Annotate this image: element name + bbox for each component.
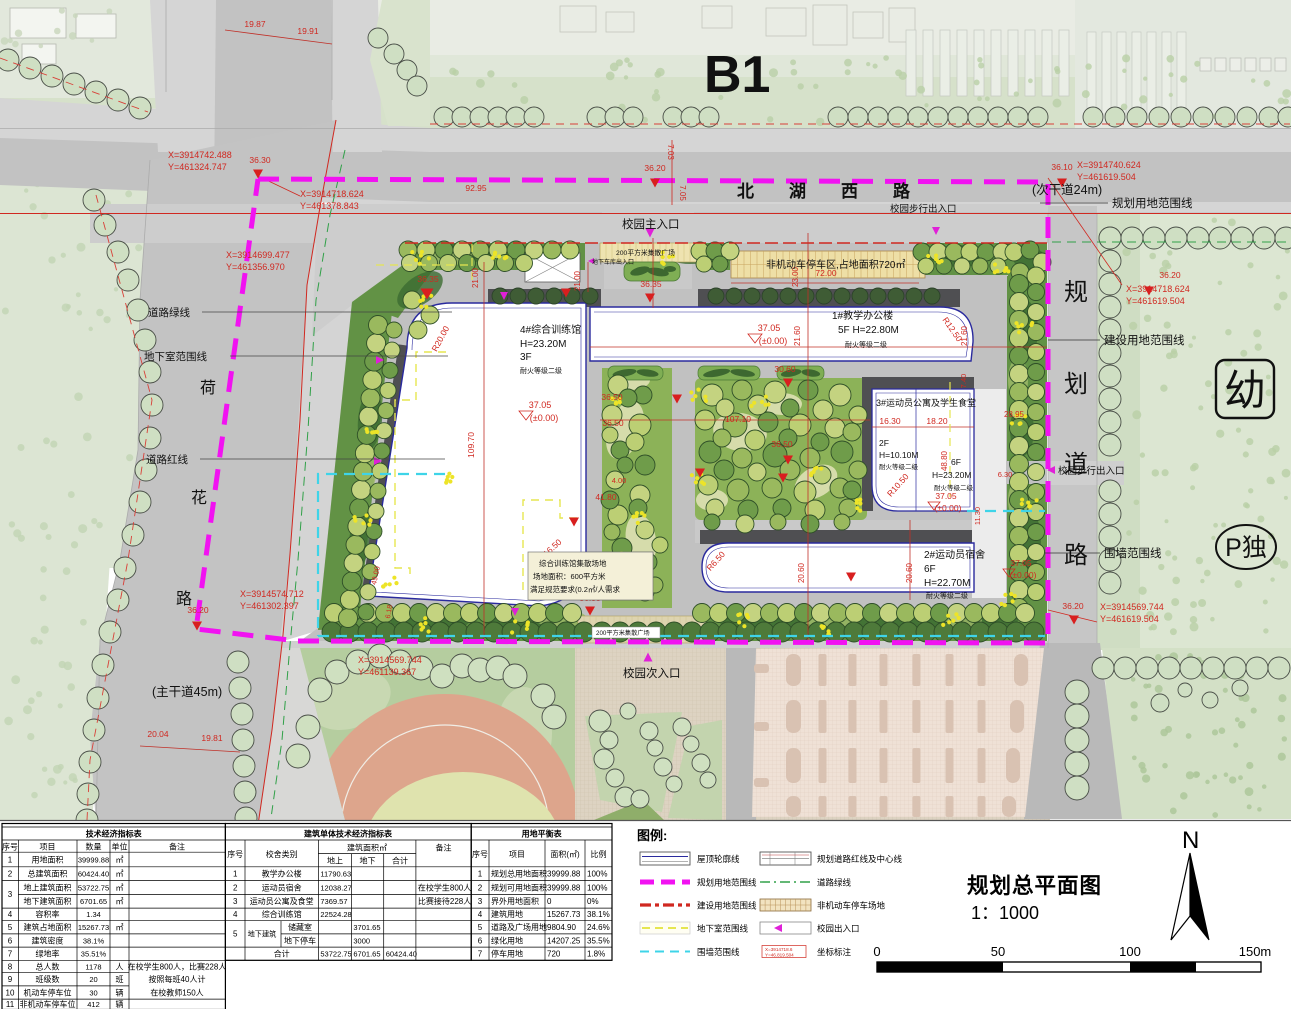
svg-text:30.60: 30.60 — [774, 364, 796, 374]
svg-text:H=10.10M: H=10.10M — [879, 450, 918, 460]
svg-text:综合训练馆: 综合训练馆 — [262, 909, 302, 919]
svg-text:备注: 备注 — [436, 843, 452, 853]
svg-text:36.50: 36.50 — [601, 392, 623, 402]
svg-text:53722.75: 53722.75 — [78, 883, 109, 892]
svg-text:92.95: 92.95 — [465, 183, 487, 193]
svg-text:划: 划 — [1064, 371, 1088, 398]
svg-text:辆: 辆 — [116, 999, 124, 1009]
svg-text:储藏室: 储藏室 — [288, 922, 312, 932]
svg-text:19.87: 19.87 — [244, 19, 266, 29]
svg-text:1178: 1178 — [85, 962, 101, 971]
svg-text:3000: 3000 — [353, 936, 370, 945]
svg-text:21.60: 21.60 — [960, 325, 969, 346]
svg-text:X=3914718.6: X=3914718.6 — [765, 947, 793, 952]
svg-text:北: 北 — [737, 182, 754, 201]
svg-text:37.05: 37.05 — [529, 400, 552, 410]
svg-text:5F H=22.80M: 5F H=22.80M — [838, 325, 899, 336]
svg-text:36.30: 36.30 — [249, 155, 271, 165]
svg-text:用地平衡表: 用地平衡表 — [521, 829, 563, 839]
svg-text:1.8%: 1.8% — [587, 950, 605, 959]
svg-text:7.03: 7.03 — [666, 144, 675, 160]
svg-text:规划总用地面积: 规划总用地面积 — [491, 868, 547, 878]
svg-text:建筑用地: 建筑用地 — [491, 909, 523, 919]
svg-text:湖: 湖 — [789, 182, 806, 201]
svg-text:非机动车停车区,占地面积720㎡: 非机动车停车区,占地面积720㎡ — [766, 258, 905, 271]
svg-text:2F: 2F — [879, 438, 889, 448]
svg-text:Y=461356.970: Y=461356.970 — [226, 262, 285, 272]
svg-text:P独: P独 — [1225, 534, 1267, 562]
svg-text:60424.40: 60424.40 — [78, 869, 109, 878]
svg-text:X=3914718.624: X=3914718.624 — [1126, 284, 1190, 294]
svg-text:场地面积：600平方米: 场地面积：600平方米 — [533, 571, 606, 581]
svg-text:8: 8 — [8, 962, 13, 971]
svg-text:20: 20 — [89, 975, 97, 984]
svg-text:21.00: 21.00 — [573, 270, 582, 291]
svg-text:60424.40: 60424.40 — [386, 950, 417, 959]
svg-text:50: 50 — [991, 944, 1005, 959]
svg-text:地下车库出入口: 地下车库出入口 — [592, 258, 634, 266]
svg-text:综合训练馆集散场地: 综合训练馆集散场地 — [539, 558, 607, 568]
svg-text:150m: 150m — [1239, 944, 1272, 959]
svg-text:1：1000: 1：1000 — [971, 903, 1039, 923]
svg-text:38.1%: 38.1% — [587, 910, 610, 919]
svg-text:4#综合训练馆: 4#综合训练馆 — [520, 323, 581, 336]
svg-text:路: 路 — [176, 590, 192, 608]
svg-text:12038.27: 12038.27 — [320, 883, 351, 892]
svg-text:N: N — [1182, 827, 1199, 854]
svg-text:㎡: ㎡ — [116, 923, 124, 932]
svg-text:校舍类别: 校舍类别 — [266, 849, 298, 859]
svg-text:耐火等级二级: 耐火等级二级 — [926, 591, 968, 600]
svg-text:35.51%: 35.51% — [81, 950, 107, 959]
svg-text:辆: 辆 — [116, 987, 124, 997]
svg-text:容积率: 容积率 — [36, 909, 60, 919]
svg-text:机动车停车位: 机动车停车位 — [24, 987, 72, 997]
svg-text:地下: 地下 — [360, 856, 376, 866]
svg-text:荷: 荷 — [200, 379, 216, 397]
svg-text:200平方米集散广场: 200平方米集散广场 — [596, 629, 650, 637]
svg-text:地下室范围线: 地下室范围线 — [697, 924, 749, 934]
svg-text:规划用地范围线: 规划用地范围线 — [697, 878, 757, 888]
svg-text:规划总平面图: 规划总平面图 — [967, 873, 1102, 898]
svg-text:规: 规 — [1064, 279, 1088, 306]
svg-text:运动员公寓及食堂: 运动员公寓及食堂 — [250, 896, 314, 906]
svg-text:Y=461302.397: Y=461302.397 — [240, 601, 299, 611]
svg-text:3: 3 — [233, 897, 238, 906]
svg-text:6: 6 — [478, 936, 483, 945]
svg-text:运动员宿舍: 运动员宿舍 — [262, 882, 302, 892]
svg-text:1: 1 — [233, 869, 238, 878]
svg-text:X=3914742.488: X=3914742.488 — [168, 150, 232, 160]
svg-text:53722.75: 53722.75 — [320, 950, 351, 959]
svg-text:序号: 序号 — [227, 849, 243, 859]
svg-text:数量: 数量 — [86, 842, 102, 852]
svg-text:花: 花 — [191, 489, 207, 507]
svg-text:100%: 100% — [587, 869, 607, 878]
svg-text:在校教师150人: 在校教师150人 — [150, 987, 203, 997]
svg-text:37.05: 37.05 — [1010, 558, 1032, 568]
svg-text:Y=461619.504: Y=461619.504 — [1100, 614, 1159, 624]
svg-text:4: 4 — [233, 910, 238, 919]
svg-text:19.81: 19.81 — [201, 733, 223, 743]
svg-text:21.00: 21.00 — [471, 267, 480, 288]
svg-text:建设用地范围线: 建设用地范围线 — [1104, 333, 1185, 347]
svg-text:地下建筑面积: 地下建筑面积 — [24, 896, 72, 906]
svg-text:15267.73: 15267.73 — [547, 910, 581, 919]
svg-text:西: 西 — [841, 182, 858, 201]
svg-text:11.30: 11.30 — [973, 507, 982, 525]
svg-text:11: 11 — [6, 1000, 15, 1009]
svg-text:1#教学办公楼: 1#教学办公楼 — [832, 309, 893, 322]
svg-text:5: 5 — [8, 923, 13, 932]
svg-text:㎡: ㎡ — [116, 855, 124, 864]
svg-text:20.60: 20.60 — [797, 562, 806, 583]
svg-text:0: 0 — [547, 897, 552, 906]
svg-text:道路红线: 道路红线 — [146, 453, 188, 466]
svg-text:Y=461378.843: Y=461378.843 — [300, 201, 359, 211]
svg-text:非机动车停车位: 非机动车停车位 — [20, 999, 76, 1009]
svg-text:0%: 0% — [587, 897, 599, 906]
svg-text:6701.65: 6701.65 — [353, 950, 380, 959]
svg-text:面积(㎡): 面积(㎡) — [550, 849, 580, 859]
svg-text:18.20: 18.20 — [926, 416, 948, 426]
svg-text:2: 2 — [8, 869, 13, 878]
svg-text:2: 2 — [233, 883, 238, 892]
svg-text:单位: 单位 — [112, 842, 128, 852]
svg-text:20.04: 20.04 — [147, 729, 169, 739]
svg-text:10: 10 — [6, 988, 15, 997]
svg-text:绿化用地: 绿化用地 — [491, 935, 523, 945]
svg-text:合计: 合计 — [274, 949, 290, 959]
svg-text:X=3914718.624: X=3914718.624 — [300, 189, 364, 199]
svg-text:停车用地: 停车用地 — [491, 949, 523, 959]
svg-text:校园步行出入口: 校园步行出入口 — [1058, 465, 1125, 477]
svg-text:0: 0 — [873, 944, 880, 959]
svg-text:围墙范围线: 围墙范围线 — [697, 947, 740, 957]
svg-text:围墙范围线: 围墙范围线 — [1104, 546, 1162, 560]
svg-text:序号: 序号 — [472, 849, 488, 859]
svg-text:耐火等级二级: 耐火等级二级 — [934, 483, 974, 492]
svg-text:4: 4 — [8, 910, 13, 919]
svg-text:Y=461139.367: Y=461139.367 — [358, 667, 416, 677]
svg-text:1.34: 1.34 — [86, 910, 101, 919]
svg-text:坐标标注: 坐标标注 — [817, 947, 852, 957]
svg-text:道路绿线: 道路绿线 — [148, 306, 190, 319]
svg-text:技术经济指标表: 技术经济指标表 — [86, 829, 143, 839]
svg-text:36.50: 36.50 — [602, 418, 624, 428]
svg-text:19.91: 19.91 — [297, 26, 319, 36]
svg-text:(±0.00): (±0.00) — [759, 336, 787, 346]
svg-text:路: 路 — [1064, 542, 1088, 569]
svg-text:非机动车停车场地: 非机动车停车场地 — [817, 901, 886, 911]
svg-text:耐火等级二级: 耐火等级二级 — [845, 340, 887, 349]
svg-text:1: 1 — [8, 855, 13, 864]
svg-text:幼: 幼 — [1224, 367, 1266, 414]
svg-text:耐火等级二级: 耐火等级二级 — [520, 366, 562, 375]
svg-text:班: 班 — [116, 974, 124, 984]
svg-text:规划道路红线及中心线: 规划道路红线及中心线 — [817, 854, 903, 864]
svg-text:7369.57: 7369.57 — [320, 897, 347, 906]
svg-text:建筑占地面积: 建筑占地面积 — [24, 922, 72, 932]
svg-text:建筑单体技术经济指标表: 建筑单体技术经济指标表 — [303, 829, 393, 839]
svg-text:36.35: 36.35 — [417, 274, 439, 284]
svg-text:28.95: 28.95 — [1004, 410, 1025, 419]
svg-text:20.60: 20.60 — [905, 562, 914, 583]
svg-text:X=3914740.624: X=3914740.624 — [1077, 160, 1141, 170]
svg-text:合计: 合计 — [392, 856, 408, 866]
svg-text:总建筑面积: 总建筑面积 — [28, 868, 68, 878]
svg-text:16.30: 16.30 — [879, 416, 901, 426]
svg-text:22524.28: 22524.28 — [320, 910, 351, 919]
svg-text:412: 412 — [87, 1000, 100, 1009]
svg-text:X=3914569.744: X=3914569.744 — [358, 655, 422, 665]
svg-text:按照每班40人计: 按照每班40人计 — [149, 974, 206, 984]
svg-text:规划可用地面积: 规划可用地面积 — [491, 882, 547, 892]
svg-text:5: 5 — [233, 930, 238, 939]
svg-text:(次干道24m): (次干道24m) — [1032, 183, 1102, 197]
svg-text:校园次入口: 校园次入口 — [623, 666, 681, 680]
svg-text:107.10: 107.10 — [725, 414, 751, 424]
svg-text:界外用地面积: 界外用地面积 — [491, 896, 539, 906]
svg-text:在校学生800人，比赛228人: 在校学生800人，比赛228人 — [128, 961, 227, 971]
svg-text:2: 2 — [478, 883, 483, 892]
svg-text:建筑面积㎡: 建筑面积㎡ — [347, 843, 387, 853]
svg-text:41.80: 41.80 — [595, 492, 617, 502]
svg-text:建设用地范围线: 建设用地范围线 — [697, 901, 757, 911]
svg-text:校园出入口: 校园出入口 — [817, 924, 860, 934]
svg-text:建筑密度: 建筑密度 — [32, 935, 64, 945]
svg-text:耐火等级二级: 耐火等级二级 — [879, 462, 919, 471]
svg-text:地上建筑面积: 地上建筑面积 — [24, 882, 72, 892]
svg-text:X=3914569.744: X=3914569.744 — [1100, 602, 1164, 612]
svg-text:7: 7 — [8, 950, 13, 959]
svg-text:㎡: ㎡ — [116, 897, 124, 906]
svg-text:6.30: 6.30 — [998, 470, 1013, 479]
svg-text:H=23.20M: H=23.20M — [932, 470, 971, 480]
svg-text:比例: 比例 — [591, 849, 607, 859]
svg-text:满足规范要求(0.2㎡/人需求: 满足规范要求(0.2㎡/人需求 — [530, 584, 621, 594]
svg-text:6701.65: 6701.65 — [80, 897, 107, 906]
svg-text:地上: 地上 — [327, 856, 343, 866]
svg-text:地下停车: 地下停车 — [284, 935, 316, 945]
svg-text:109.70: 109.70 — [466, 432, 476, 458]
svg-text:3#运动员公寓及学生食堂: 3#运动员公寓及学生食堂 — [876, 397, 976, 408]
svg-text:项目: 项目 — [40, 843, 56, 852]
svg-text:39999.88: 39999.88 — [78, 855, 109, 864]
svg-text:校园主入口: 校园主入口 — [622, 217, 680, 231]
svg-text:Y=461619.504: Y=461619.504 — [1077, 172, 1136, 182]
svg-text:H=23.20M: H=23.20M — [520, 339, 566, 350]
svg-text:36.50: 36.50 — [771, 439, 793, 449]
svg-text:720: 720 — [547, 950, 561, 959]
svg-text:36.20: 36.20 — [1159, 270, 1181, 280]
svg-text:3F: 3F — [520, 352, 532, 363]
svg-text:6F: 6F — [951, 457, 961, 467]
svg-text:36.35: 36.35 — [640, 279, 662, 289]
svg-text:X=3914699.477: X=3914699.477 — [226, 250, 290, 260]
svg-text:项目: 项目 — [509, 850, 525, 859]
svg-text:道路绿线: 道路绿线 — [817, 878, 852, 888]
svg-text:30: 30 — [89, 988, 97, 997]
svg-text:总人数: 总人数 — [36, 961, 60, 971]
svg-text:36.20: 36.20 — [644, 163, 666, 173]
svg-text:校园步行出入口: 校园步行出入口 — [890, 203, 957, 215]
svg-text:14207.25: 14207.25 — [547, 936, 581, 945]
svg-text:6: 6 — [8, 936, 13, 945]
svg-text:9: 9 — [8, 975, 13, 984]
svg-text:Y=461619.504: Y=461619.504 — [1126, 296, 1185, 306]
svg-text:(主干道45m): (主干道45m) — [152, 685, 222, 699]
svg-text:7.40: 7.40 — [959, 374, 968, 389]
svg-text:序号: 序号 — [2, 842, 18, 852]
svg-text:4: 4 — [478, 910, 483, 919]
svg-text:图例:: 图例: — [637, 828, 667, 843]
svg-text:36.20: 36.20 — [1062, 601, 1084, 611]
svg-text:B1: B1 — [704, 46, 770, 104]
svg-text:100%: 100% — [587, 883, 607, 892]
svg-text:道路及广场用地: 道路及广场用地 — [491, 922, 547, 932]
svg-text:屋顶轮廓线: 屋顶轮廓线 — [697, 854, 740, 864]
svg-text:班级数: 班级数 — [36, 974, 60, 984]
svg-text:备注: 备注 — [169, 842, 185, 852]
svg-text:(±0.00): (±0.00) — [530, 413, 558, 423]
svg-text:比赛接待228人: 比赛接待228人 — [418, 896, 471, 906]
svg-text:7: 7 — [478, 950, 483, 959]
svg-text:11790.63: 11790.63 — [320, 869, 351, 878]
svg-text:36.10: 36.10 — [1051, 162, 1073, 172]
svg-text:在校学生800人: 在校学生800人 — [418, 882, 471, 892]
svg-text:㎡: ㎡ — [116, 883, 124, 892]
svg-text:7.05: 7.05 — [678, 185, 687, 201]
svg-text:200平方米集散广场: 200平方米集散广场 — [616, 248, 675, 257]
svg-text:38.1%: 38.1% — [83, 936, 105, 945]
svg-text:39999.88: 39999.88 — [547, 883, 581, 892]
svg-text:用地面积: 用地面积 — [32, 854, 64, 864]
svg-text:48.80: 48.80 — [940, 450, 949, 471]
svg-text:2#运动员宿舍: 2#运动员宿舍 — [924, 548, 985, 561]
svg-text:1: 1 — [478, 869, 483, 878]
svg-text:21.60: 21.60 — [793, 325, 802, 346]
svg-text:6F: 6F — [924, 564, 936, 575]
svg-text:X=3914574.712: X=3914574.712 — [240, 589, 304, 599]
svg-text:Y=461324.747: Y=461324.747 — [168, 162, 227, 172]
svg-text:绿地率: 绿地率 — [36, 949, 60, 959]
svg-text:24.6%: 24.6% — [587, 923, 610, 932]
svg-text:100: 100 — [1119, 944, 1141, 959]
svg-text:5: 5 — [478, 923, 483, 932]
svg-text:37.05: 37.05 — [935, 491, 957, 501]
svg-text:3: 3 — [478, 897, 483, 906]
svg-text:15267.73: 15267.73 — [78, 923, 109, 932]
svg-text:35.5%: 35.5% — [587, 936, 610, 945]
svg-text:㎡: ㎡ — [116, 869, 124, 878]
svg-text:教学办公楼: 教学办公楼 — [262, 868, 302, 878]
svg-text:4.00: 4.00 — [612, 476, 627, 485]
svg-text:地下室范围线: 地下室范围线 — [144, 350, 207, 363]
svg-text:3701.65: 3701.65 — [353, 923, 380, 932]
svg-text:9804.90: 9804.90 — [547, 923, 576, 932]
svg-text:地下建筑: 地下建筑 — [248, 930, 277, 939]
svg-text:规划用地范围线: 规划用地范围线 — [1112, 196, 1193, 210]
svg-text:3: 3 — [8, 890, 13, 899]
svg-text:37.05: 37.05 — [758, 323, 781, 333]
svg-text:39999.88: 39999.88 — [547, 869, 581, 878]
svg-text:路: 路 — [893, 181, 911, 201]
svg-text:人: 人 — [116, 962, 124, 971]
svg-text:Y=46.819.504: Y=46.819.504 — [765, 953, 794, 958]
svg-text:H=22.70M: H=22.70M — [924, 578, 970, 589]
